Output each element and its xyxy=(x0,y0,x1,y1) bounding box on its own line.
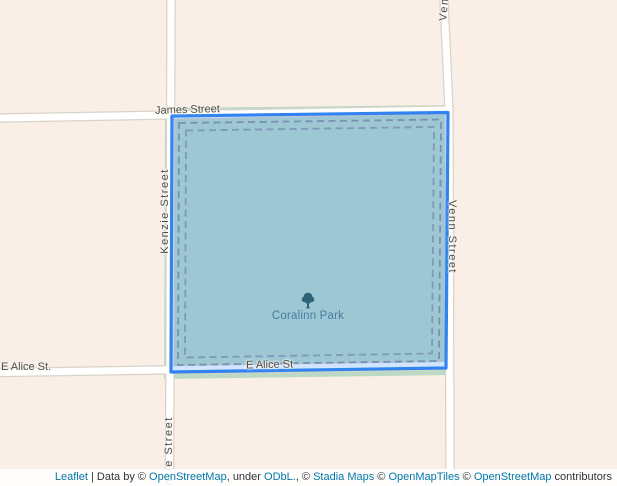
attribution-link-odbl[interactable]: ODbL. xyxy=(264,471,296,483)
attribution-text: , under xyxy=(227,471,264,483)
attribution-text: © xyxy=(374,471,388,483)
attribution-link-stadia-maps[interactable]: Stadia Maps xyxy=(313,471,374,483)
attribution-text: , © xyxy=(296,471,313,483)
attribution-bar: Leaflet | Data by © OpenStreetMap, under… xyxy=(0,469,617,486)
attribution-link-openstreetmap-2[interactable]: OpenStreetMap xyxy=(474,471,552,483)
park-selection-polygon[interactable] xyxy=(171,113,448,373)
attribution-link-openstreetmap[interactable]: OpenStreetMap xyxy=(149,471,227,483)
attribution-text: | Data by © xyxy=(88,471,149,483)
attribution-link-leaflet[interactable]: Leaflet xyxy=(55,471,88,483)
attribution-text: © xyxy=(460,471,474,483)
attribution-link-openmaptiles[interactable]: OpenMapTiles xyxy=(388,471,459,483)
map-canvas[interactable]: James Street E Alice St. E Alice St Kenz… xyxy=(0,0,617,486)
attribution-text: contributors xyxy=(551,471,612,483)
